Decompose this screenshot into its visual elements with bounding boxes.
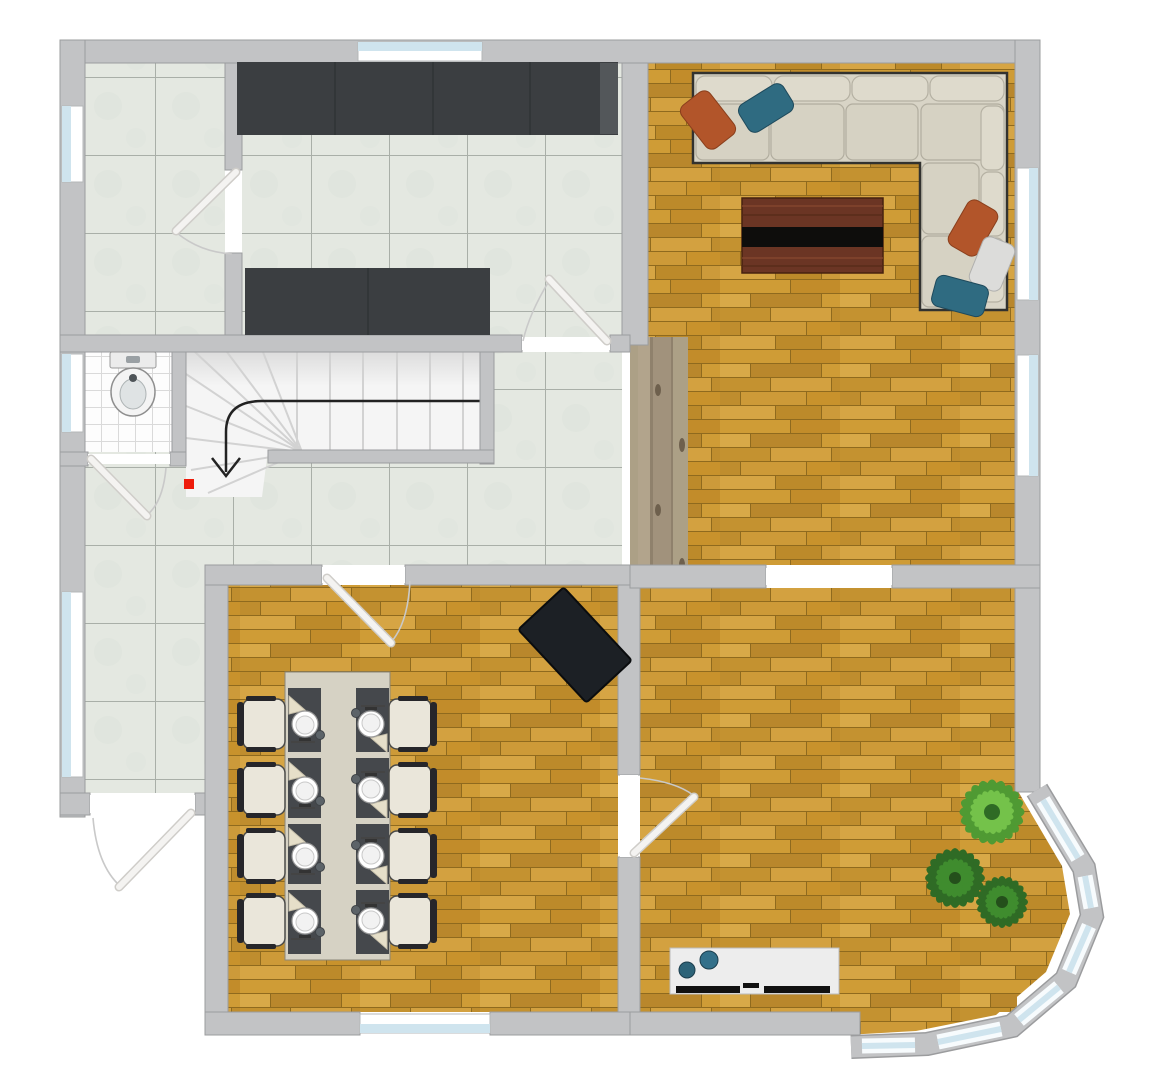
- wall-segment: [268, 450, 494, 463]
- bidet[interactable]: [110, 352, 156, 416]
- kitchen-door-threshold: [522, 337, 610, 350]
- decor-ball: [700, 951, 718, 969]
- window-left-bathroom[interactable]: [62, 354, 83, 432]
- window-left-3[interactable]: [62, 592, 83, 777]
- sideboard[interactable]: [670, 948, 839, 994]
- dining-chair[interactable]: [237, 696, 285, 752]
- window-right-1[interactable]: [1017, 168, 1038, 300]
- window-right-2[interactable]: [1017, 355, 1038, 476]
- living-family-passage: [766, 568, 892, 585]
- wall-segment: [630, 1012, 860, 1035]
- wall-segment: [490, 1012, 630, 1035]
- wall-segment: [170, 452, 186, 466]
- bidet-faucet: [129, 374, 137, 382]
- decor-ball: [679, 962, 695, 978]
- entry-door[interactable]: [93, 813, 191, 887]
- dining-chair[interactable]: [237, 762, 285, 818]
- stair-marker: [184, 479, 194, 489]
- window-left-1[interactable]: [62, 106, 83, 182]
- wall-segment: [205, 565, 322, 585]
- dining-chair[interactable]: [389, 696, 437, 752]
- counter-top-run[interactable]: [237, 62, 618, 135]
- sideboard-front-right: [764, 986, 830, 993]
- wall-segment: [480, 352, 494, 464]
- wall-segment: [610, 335, 630, 352]
- hallway-floor-right-of-stairs: [494, 352, 622, 465]
- wall-segment: [622, 63, 648, 345]
- family-door-threshold: [620, 775, 638, 857]
- dining-chair[interactable]: [237, 828, 285, 884]
- wall-segment: [892, 565, 1040, 588]
- entry-door-threshold: [90, 795, 195, 813]
- wall-segment: [630, 565, 766, 588]
- sideboard-front-left: [676, 986, 740, 993]
- wall-segment: [205, 1012, 360, 1035]
- wall-segment: [60, 452, 88, 466]
- wall-segment: [618, 585, 640, 775]
- dining-set[interactable]: [237, 672, 437, 960]
- dining-chair[interactable]: [389, 762, 437, 818]
- wall-segment: [60, 793, 90, 815]
- wall-segment: [205, 565, 228, 1035]
- wall-segment: [618, 857, 640, 1012]
- dining-chair[interactable]: [389, 828, 437, 884]
- wall-segment: [60, 335, 522, 352]
- floor-plan-stage: [0, 0, 1154, 1080]
- window-bottom-dining[interactable]: [360, 1014, 490, 1033]
- wall-segment: [172, 352, 186, 455]
- dining-chair[interactable]: [237, 893, 285, 949]
- dining-chair[interactable]: [389, 893, 437, 949]
- hallway-floor-left: [85, 565, 205, 793]
- coffee-table[interactable]: [742, 198, 883, 273]
- floor-plan-canvas: [0, 0, 1154, 1080]
- coffee-table-tray: [742, 227, 883, 247]
- window-top[interactable]: [358, 42, 482, 61]
- wall-segment: [225, 253, 242, 337]
- wall-segment: [60, 40, 1040, 63]
- sideboard-handle: [743, 983, 759, 988]
- passage-plank-floor: [630, 337, 688, 575]
- counter-end-piece: [600, 63, 618, 134]
- wall-segment: [405, 565, 630, 585]
